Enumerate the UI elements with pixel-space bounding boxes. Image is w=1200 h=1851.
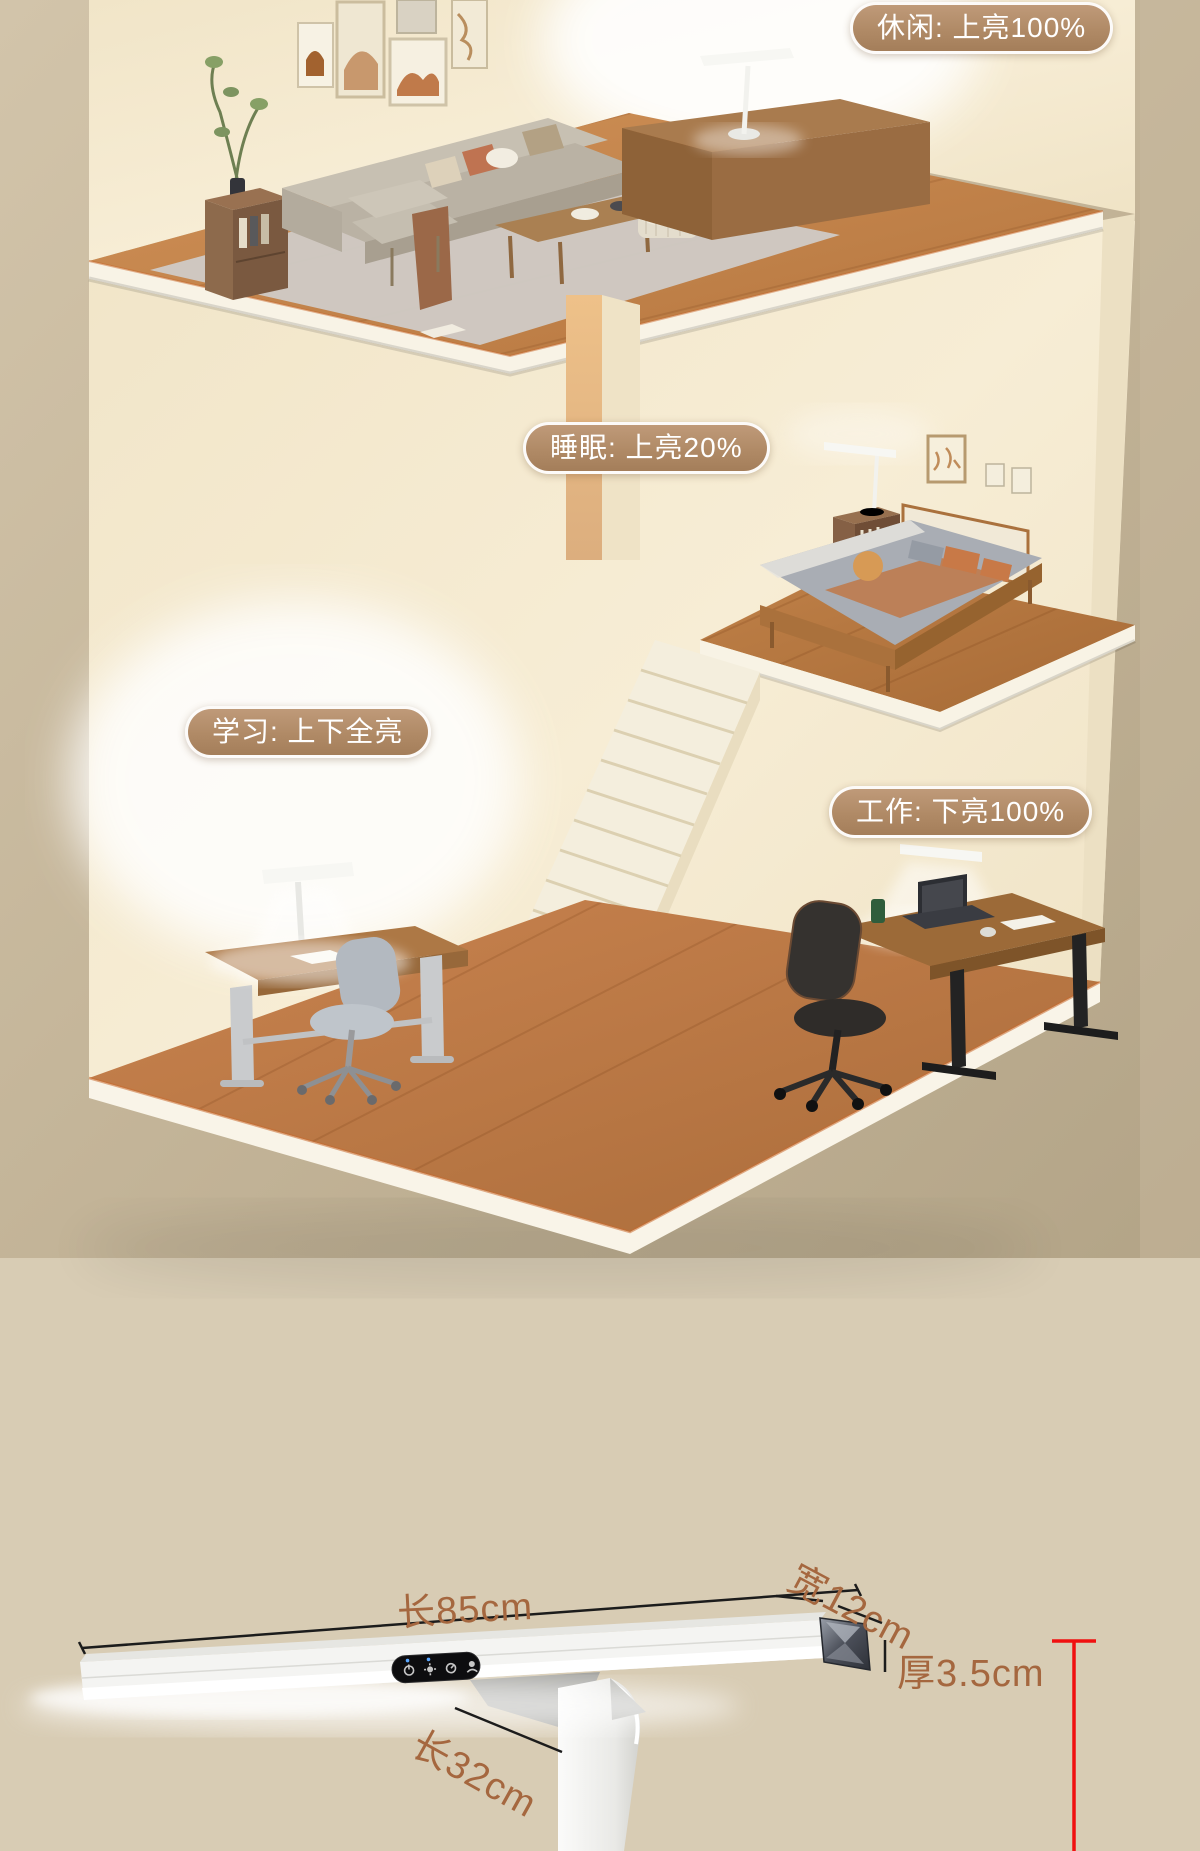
- plant-leaf: [250, 98, 268, 110]
- book-spine: [250, 216, 258, 246]
- desk-leg: [950, 969, 966, 1069]
- mode-label-work: 工作: 下亮100%: [829, 786, 1092, 838]
- cabinet-front: [205, 200, 233, 300]
- table-leg: [560, 242, 562, 284]
- bed-round-cushion: [853, 551, 883, 581]
- desk-foot: [410, 1056, 454, 1063]
- art-frame: [397, 0, 436, 33]
- bedroom-art-frame: [928, 436, 965, 482]
- coffee-cup: [871, 899, 885, 923]
- desk-foot: [220, 1080, 264, 1087]
- product-showcase-image: 休闲: 上亮100% 睡眠: 上亮20% 学习: 上下全亮 工作: 下亮100%…: [0, 0, 1200, 1851]
- cabinet-side: [233, 198, 288, 300]
- lamp-pole: [298, 882, 302, 948]
- desk-leg: [1072, 933, 1088, 1029]
- book-spine: [261, 214, 269, 244]
- dimension-label-bar-length: 长85cm: [396, 1575, 535, 1637]
- control-panel: [391, 1652, 480, 1684]
- mode-label-text: 休闲: 上亮100%: [877, 14, 1086, 42]
- lamp-base: [860, 508, 884, 516]
- scene-illustration: [0, 0, 1200, 1851]
- chair-caster: [297, 1085, 307, 1095]
- plant-leaf: [205, 56, 223, 68]
- mouse: [980, 927, 996, 937]
- mode-label-text: 工作: 下亮100%: [856, 798, 1065, 826]
- table-dish: [571, 208, 599, 220]
- mode-label-study: 学习: 上下全亮: [185, 706, 431, 758]
- dimension-label-bar-thickness: 厚3.5cm: [897, 1642, 1044, 1697]
- chair-caster: [774, 1088, 786, 1100]
- plant-leaf: [214, 127, 230, 137]
- mode-label-sleep: 睡眠: 上亮20%: [523, 422, 770, 474]
- desk-leg: [230, 985, 254, 1085]
- chair-caster: [880, 1084, 892, 1096]
- background-edge-strip: [1140, 0, 1200, 1258]
- mode-label-leisure: 休闲: 上亮100%: [850, 2, 1113, 54]
- mode-label-text: 学习: 上下全亮: [212, 718, 404, 746]
- table-leg: [510, 236, 512, 278]
- chair-caster: [852, 1098, 864, 1110]
- chair-post: [348, 1030, 352, 1068]
- throw-pillow-round: [486, 148, 518, 168]
- chair-caster: [391, 1081, 401, 1091]
- book-spine: [239, 218, 247, 248]
- chair-caster: [806, 1100, 818, 1112]
- plant-leaf: [223, 87, 239, 97]
- bedroom-poster: [986, 464, 1004, 486]
- control-panel-body: [391, 1652, 480, 1684]
- desk-leg: [420, 955, 444, 1061]
- chair-caster: [325, 1095, 335, 1105]
- chair-caster: [367, 1095, 377, 1105]
- bedroom-poster: [1012, 468, 1031, 493]
- mode-label-text: 睡眠: 上亮20%: [550, 434, 743, 462]
